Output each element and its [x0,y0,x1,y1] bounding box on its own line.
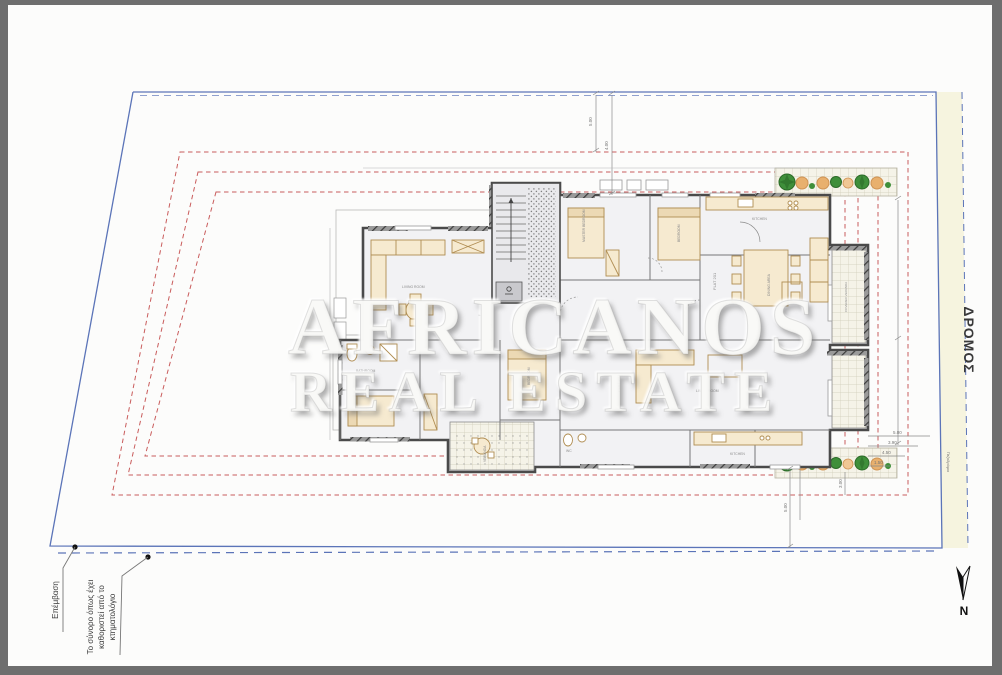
svg-text:5.00: 5.00 [783,503,788,512]
building-plan: LIVING ROOM MASTER BEDROOM BEDROOM KITCH… [333,180,869,472]
svg-text:LIVING ROOM: LIVING ROOM [402,285,425,289]
svg-text:COVERED VERANDA: COVERED VERANDA [844,282,848,312]
sidewalk-label: Πεζοδρόμιο [943,432,951,492]
road-label: ΔΡΟΜΟΣ [961,304,977,376]
svg-text:BEDROOM: BEDROOM [527,367,531,385]
svg-text:4.50: 4.50 [882,450,891,455]
svg-text:FLAT 202: FLAT 202 [616,374,621,392]
svg-text:5.00: 5.00 [588,117,593,126]
svg-text:5.00: 5.00 [893,430,902,435]
svg-text:4.00: 4.00 [604,141,609,150]
planting-strip-top [775,168,897,196]
svg-text:1.50: 1.50 [874,460,883,465]
svg-text:LIVING ROOM: LIVING ROOM [696,389,719,393]
svg-text:VERANDA: VERANDA [483,445,487,462]
balcony-bottom-right [832,352,866,428]
boundary-note-line1: Το σύνορο όπως έχει [85,562,96,672]
svg-text:BATHROOM: BATHROOM [356,369,376,373]
north-label: N [955,604,973,618]
svg-text:3.00: 3.00 [838,479,843,488]
svg-text:KITCHEN: KITCHEN [730,452,745,456]
svg-text:3.90: 3.90 [888,440,897,445]
stair-core [492,183,560,303]
svg-text:MASTER BEDROOM: MASTER BEDROOM [582,209,586,242]
svg-text:FLAT 201: FLAT 201 [712,272,717,290]
boundary-note-label: Το σύνορο όπως έχει καθοριστεί από το κτ… [85,562,119,672]
svg-text:BEDROOM: BEDROOM [677,224,681,242]
balcony-top-right [832,247,866,343]
boundary-note-line2: καθοριστεί από το [96,562,107,672]
north-arrow-icon [956,566,970,600]
screenshot-frame: LIVING ROOM MASTER BEDROOM BEDROOM KITCH… [0,0,1002,675]
svg-text:KITCHEN: KITCHEN [752,217,767,221]
intervention-label: Επέμβαση [51,560,63,640]
floor-plan-canvas: LIVING ROOM MASTER BEDROOM BEDROOM KITCH… [0,0,1002,675]
boundary-note-line3: κτηματολόγιο [107,562,118,672]
svg-text:DINING AREA: DINING AREA [767,273,771,296]
svg-text:WC: WC [566,449,572,453]
